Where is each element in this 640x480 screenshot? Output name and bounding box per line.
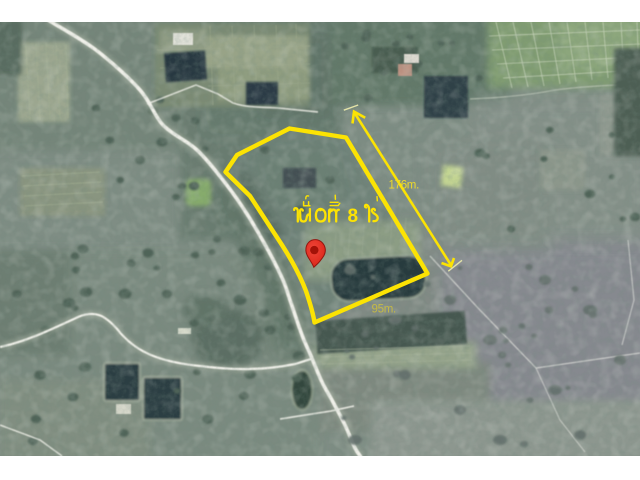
svg-text:176m.: 176m.: [389, 180, 420, 192]
svg-text:8: 8: [348, 206, 359, 227]
svg-text:95m.: 95m.: [372, 304, 396, 316]
